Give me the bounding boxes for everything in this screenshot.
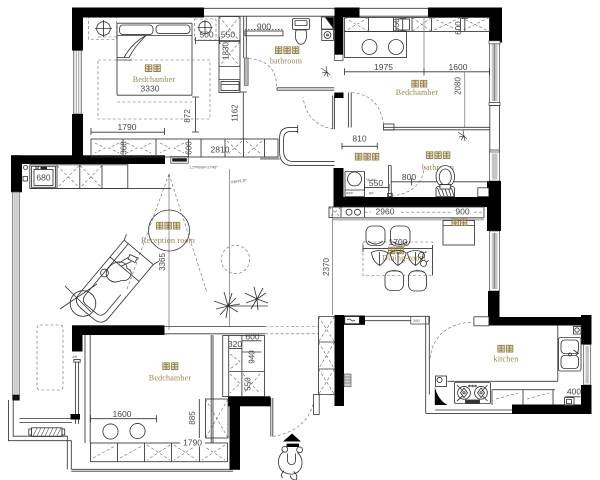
svg-text:###: ### [346, 191, 353, 196]
svg-text:550: 550 [244, 377, 253, 391]
svg-text:1790: 1790 [118, 122, 137, 132]
svg-text:1600: 1600 [113, 409, 132, 419]
svg-text:*#-##: *#-## [366, 177, 376, 182]
svg-text:550: 550 [392, 18, 401, 32]
svg-text:bathroom: bathroom [270, 57, 303, 66]
svg-text:400: 400 [567, 387, 581, 397]
svg-text:1.5*#890=2745*: 1.5*#890=2745* [189, 165, 218, 170]
svg-text:550: 550 [221, 30, 235, 40]
svg-text:940: 940 [248, 350, 257, 364]
svg-text:600: 600 [454, 21, 463, 35]
svg-text:885: 885 [188, 411, 197, 425]
svg-text:600: 600 [245, 332, 259, 342]
svg-text:680: 680 [36, 173, 50, 183]
svg-text:900: 900 [455, 207, 469, 217]
svg-text:##: ## [369, 191, 374, 196]
svg-text:3330: 3330 [141, 84, 160, 94]
svg-text:3365: 3365 [158, 253, 167, 271]
svg-text:320: 320 [228, 339, 242, 349]
svg-text:368: 368 [120, 141, 129, 155]
svg-text:800: 800 [402, 172, 416, 182]
svg-text:600: 600 [185, 141, 194, 155]
svg-text:1830: 1830 [222, 42, 231, 60]
svg-text:1975: 1975 [374, 62, 393, 72]
svg-text:872: 872 [183, 109, 192, 123]
svg-text:260: 260 [413, 318, 420, 323]
svg-text:1790: 1790 [183, 438, 202, 448]
svg-text:Reception room: Reception room [141, 236, 196, 245]
svg-text:2960: 2960 [376, 207, 395, 217]
svg-text:Bedchamber: Bedchamber [149, 374, 192, 383]
svg-text:2080: 2080 [454, 77, 463, 95]
svg-text:500: 500 [199, 30, 213, 40]
svg-text:1600: 1600 [449, 62, 468, 72]
svg-text:810: 810 [352, 134, 366, 144]
svg-text:2370: 2370 [322, 258, 331, 276]
svg-text:900: 900 [257, 22, 271, 32]
svg-text:2810: 2810 [211, 145, 230, 155]
svg-text:##: ## [73, 354, 78, 359]
svg-text:kitchen: kitchen [494, 355, 519, 364]
svg-text:1700: 1700 [389, 237, 408, 247]
svg-text:Bedchamber: Bedchamber [396, 88, 439, 97]
svg-text:1162: 1162 [231, 104, 240, 122]
